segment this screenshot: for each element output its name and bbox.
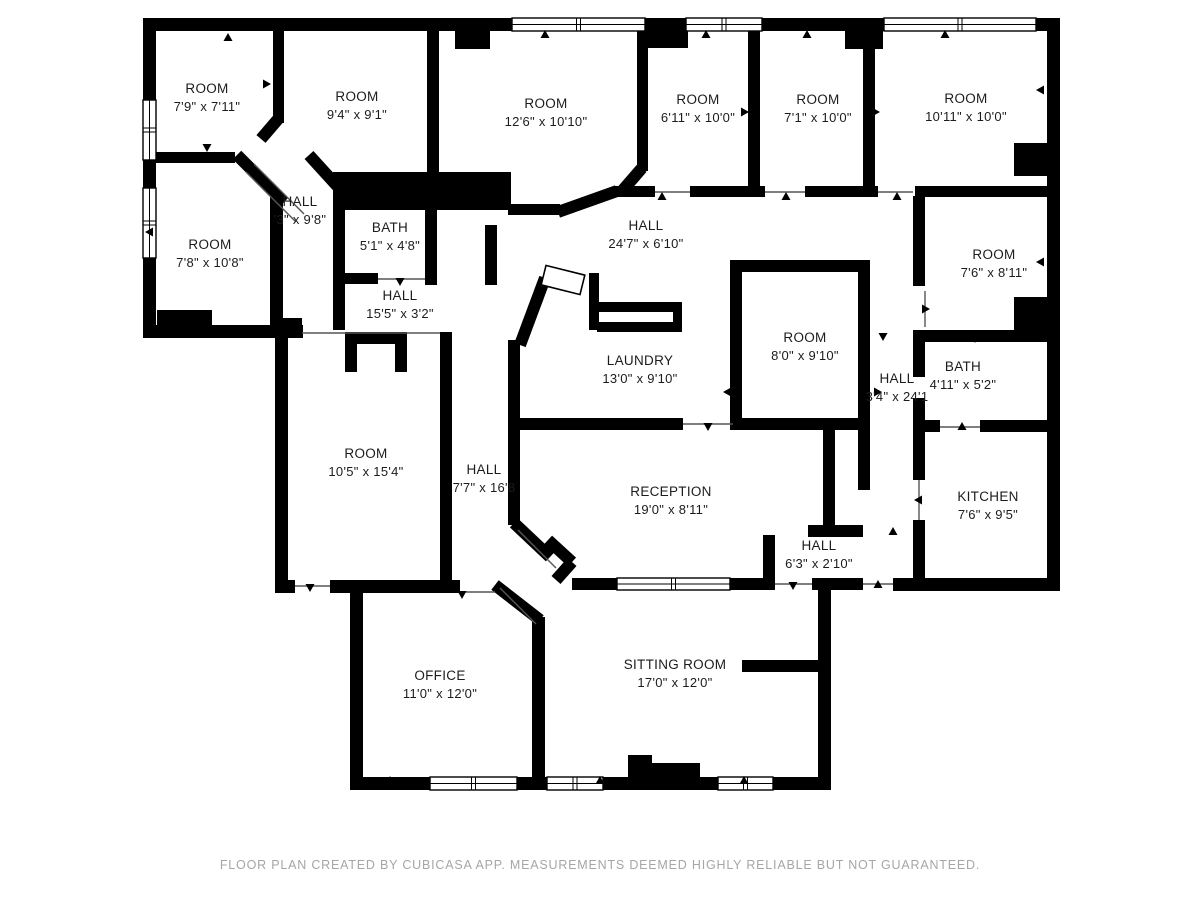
label-hall-upper: HALL'3" x 9'8": [274, 193, 327, 228]
label-office: OFFICE11'0" x 12'0": [403, 667, 477, 702]
label-room-3: ROOM12'6" x 10'10": [505, 95, 588, 130]
label-bath-1: BATH5'1" x 4'8": [360, 219, 420, 254]
footer-disclaimer: FLOOR PLAN CREATED BY CUBICASA APP. MEAS…: [220, 858, 980, 872]
label-room-10: ROOM10'5" x 15'4": [328, 445, 403, 480]
label-room-8: ROOM7'6" x 8'11": [961, 246, 1028, 281]
floor-plan-canvas: [0, 0, 1200, 900]
label-laundry: LAUNDRY13'0" x 9'10": [602, 352, 677, 387]
label-hall-77: HALL7'7" x 16'8: [453, 461, 516, 496]
label-room-4: ROOM6'11" x 10'0": [661, 91, 735, 126]
label-kitchen: KITCHEN7'6" x 9'5": [957, 488, 1018, 523]
label-hall-24: HALL24'7" x 6'10": [608, 217, 683, 252]
label-bath-2: BATH4'11" x 5'2": [930, 358, 997, 393]
label-room-5: ROOM7'1" x 10'0": [784, 91, 852, 126]
label-room-2: ROOM9'4" x 9'1": [327, 88, 387, 123]
label-room-9: ROOM8'0" x 9'10": [771, 329, 839, 364]
label-room-1: ROOM7'9" x 7'11": [174, 80, 241, 115]
label-hall-15: HALL15'5" x 3'2": [366, 287, 434, 322]
label-hall-63: HALL6'3" x 2'10": [785, 537, 853, 572]
label-room-7: ROOM7'8" x 10'8": [176, 236, 244, 271]
label-room-6: ROOM10'11" x 10'0": [925, 90, 1007, 125]
floor-plan-page: ROOM7'9" x 7'11" ROOM9'4" x 9'1" ROOM12'…: [0, 0, 1200, 900]
label-hall-34: HALL3'4" x 24'1: [866, 370, 929, 405]
label-reception: RECEPTION19'0" x 8'11": [630, 483, 711, 518]
label-sitting-room: SITTING ROOM17'0" x 12'0": [624, 656, 727, 691]
